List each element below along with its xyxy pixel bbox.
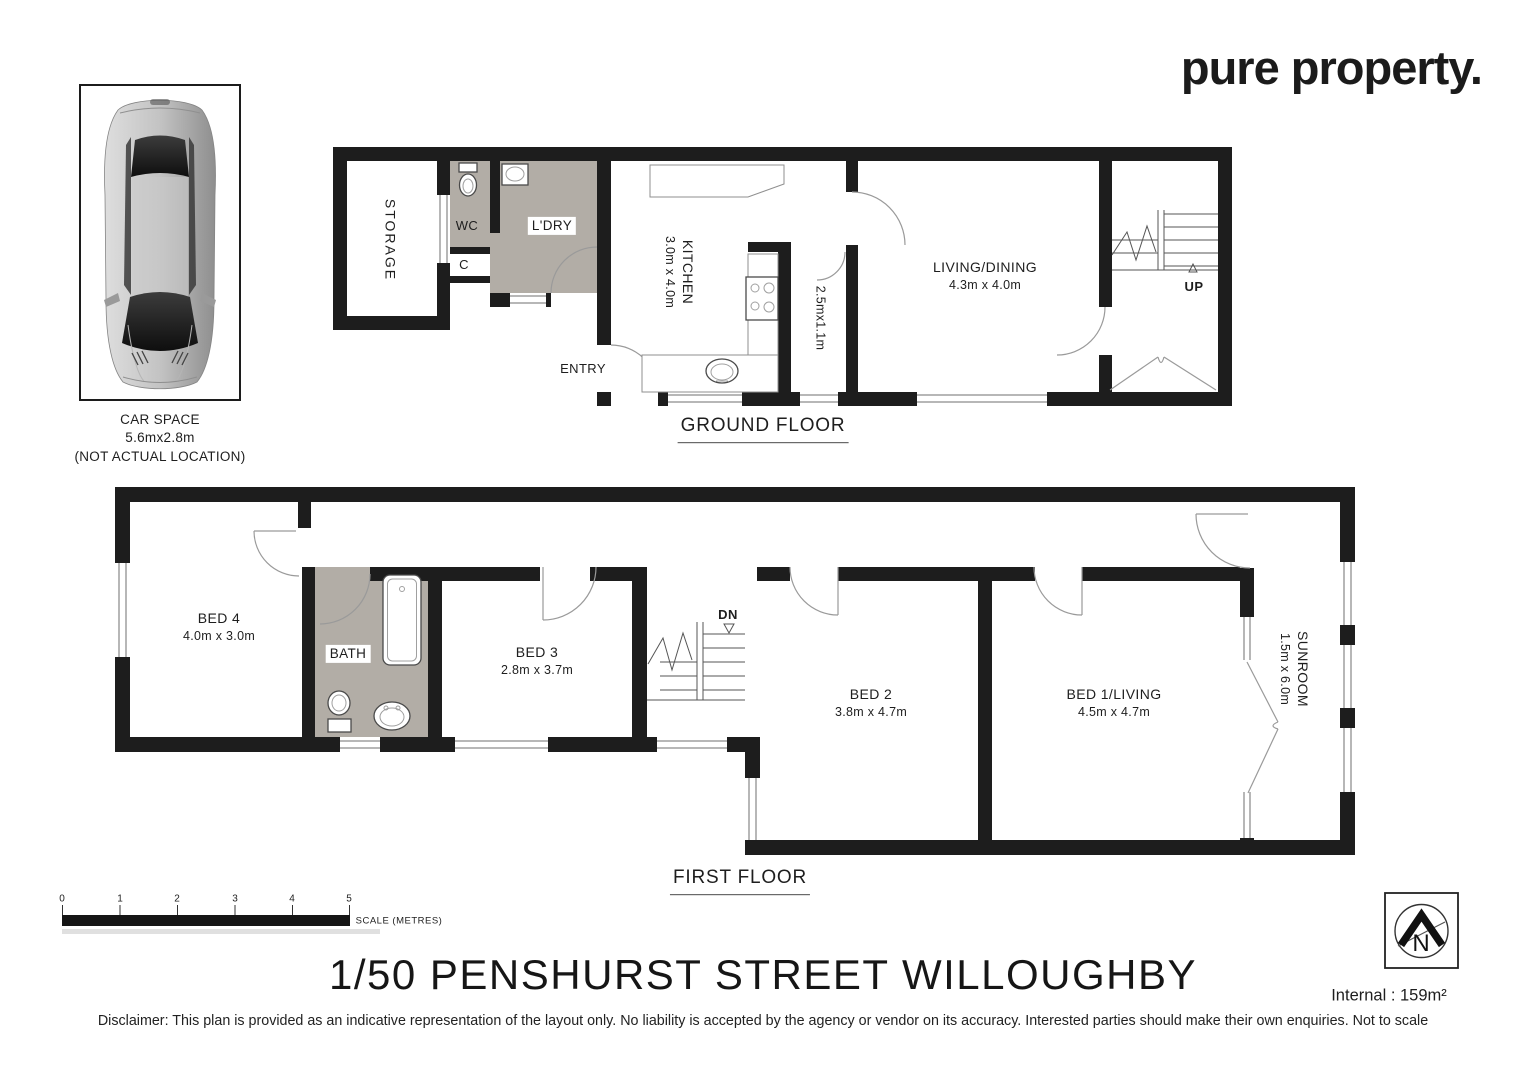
first-floor-walls [115,487,1355,855]
car-space-size: 5.6mx2.8m [125,429,194,447]
stairs-up-label: UP [1184,278,1203,296]
stairs-down [647,622,745,700]
scale-tick-1: 1 [117,894,123,905]
scale-tick-3: 3 [232,894,238,905]
room-label-bath: BATH [326,645,371,663]
bath-sink-icon [374,702,410,730]
floor-plan-graphics [0,0,1527,1080]
room-label-bed3: BED 3 2.8m x 3.7m [501,643,573,679]
ground-floor-title: GROUND FLOOR [678,413,849,443]
car-space-note: (NOT ACTUAL LOCATION) [74,448,245,466]
kitchen-name: KITCHEN [678,236,697,308]
scale-tick-0: 0 [59,894,65,905]
room-label-laundry: L'DRY [528,217,576,235]
bed2-dims: 3.8m x 4.7m [835,704,907,721]
room-label-bed2: BED 2 3.8m x 4.7m [835,685,907,721]
car-space-title: CAR SPACE [120,411,200,429]
first-floor-windows [115,562,1355,840]
stove-icon [746,277,778,320]
room-label-bed1-living: BED 1/LIVING 4.5m x 4.7m [1066,685,1161,721]
bathtub-icon [383,575,421,665]
bed3-dims: 2.8m x 3.7m [501,662,573,679]
car-top-view-icon [104,99,216,389]
floorplan-page: pure property. CAR SPACE 5.6mx2.8m (NOT … [0,0,1527,1080]
scale-bar-label: SCALE (METRES) [356,916,443,927]
bed1-name: BED 1/LIVING [1066,685,1161,704]
scale-bar [62,905,380,934]
kitchen-sink-icon [706,359,738,383]
internal-area-label: Internal : 159m² [1331,987,1447,1006]
first-floor-title: FIRST FLOOR [670,865,810,895]
ground-floor-plan [333,147,1232,406]
room-label-kitchen: KITCHEN 3.0m x 4.0m [661,236,697,308]
room-label-sunroom: SUNROOM 1.5m x 6.0m [1276,631,1312,707]
wc-toilet-icon [459,163,477,196]
car-space-illustration [80,85,240,400]
room-label-wc: WC [456,217,478,235]
room-label-cupboard: C [459,256,469,274]
room-label-bed4: BED 4 4.0m x 3.0m [183,609,255,645]
kitchen-dims: 3.0m x 4.0m [661,236,678,308]
first-floor-plan [115,487,1355,855]
scale-tick-5: 5 [346,894,352,905]
bed1-dims: 4.5m x 4.7m [1066,704,1161,721]
bed2-name: BED 2 [835,685,907,704]
bed3-name: BED 3 [501,643,573,662]
stairs-up [1112,210,1218,272]
bed4-dims: 4.0m x 3.0m [183,628,255,645]
sunroom-name: SUNROOM [1293,631,1312,707]
north-label: N [1412,930,1429,958]
disclaimer-text: Disclaimer: This plan is provided as an … [98,1013,1428,1029]
sunroom-dims: 1.5m x 6.0m [1276,631,1293,707]
room-label-hall-dims: 2.5mx1.1m [812,286,829,351]
bed4-name: BED 4 [183,609,255,628]
stairs-down-label: DN [718,606,738,624]
bath-toilet-icon [328,691,351,732]
room-label-entry: ENTRY [560,360,606,378]
living-dining-name: LIVING/DINING [933,258,1037,277]
room-label-living-dining: LIVING/DINING 4.3m x 4.0m [933,258,1037,294]
scale-tick-4: 4 [289,894,295,905]
living-dining-dims: 4.3m x 4.0m [933,277,1037,294]
room-label-storage: STORAGE [381,199,400,281]
laundry-tub-icon [502,164,528,185]
scale-tick-2: 2 [174,894,180,905]
property-address-title: 1/50 PENSHURST STREET WILLOUGHBY [329,951,1197,999]
agency-logo: pure property. [1181,40,1482,95]
